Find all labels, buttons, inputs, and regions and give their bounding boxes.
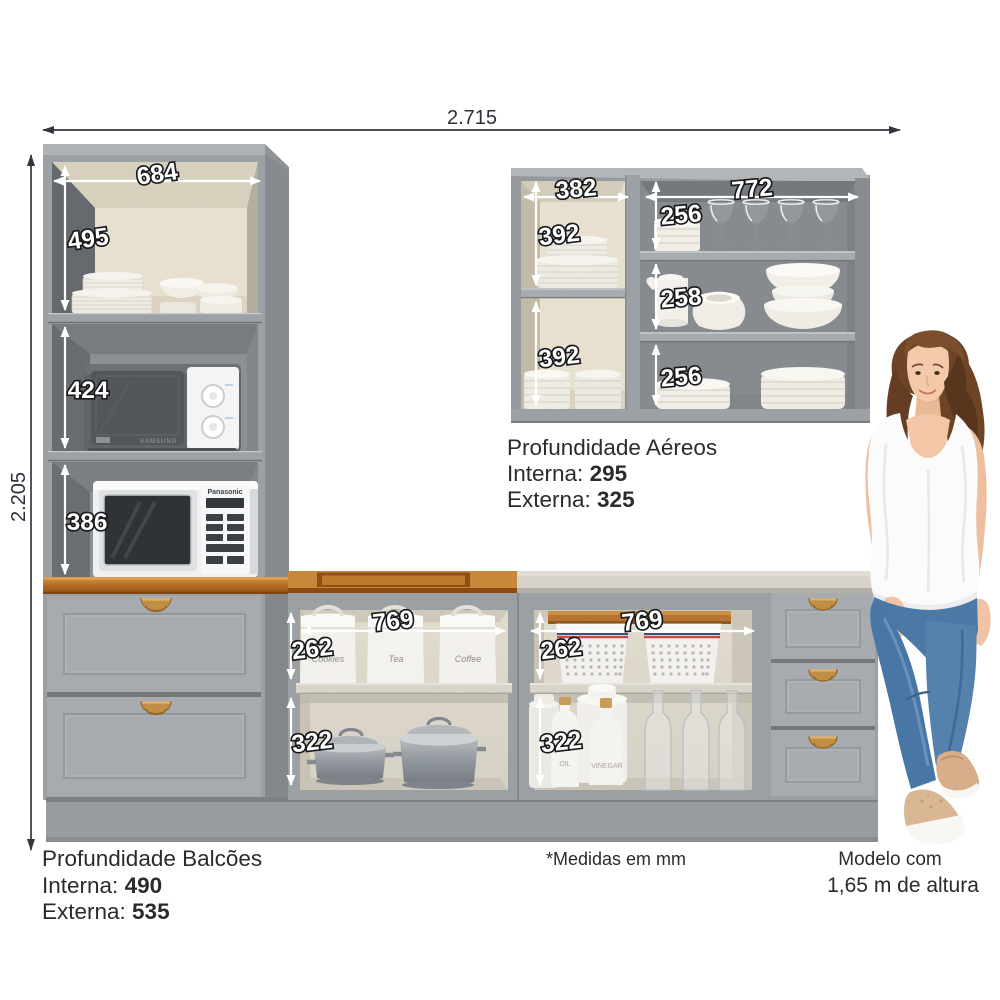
- svg-text:1,65 m de altura: 1,65 m de altura: [827, 874, 979, 897]
- svg-text:Profundidade Aéreos: Profundidade Aéreos: [507, 435, 717, 460]
- svg-text:*Medidas em mm: *Medidas em mm: [546, 849, 686, 869]
- svg-text:769: 769: [620, 606, 663, 637]
- svg-text:684: 684: [135, 158, 180, 190]
- svg-text:256: 256: [660, 200, 703, 230]
- svg-text:2.715: 2.715: [447, 107, 497, 129]
- svg-text:256: 256: [660, 362, 703, 392]
- svg-text:2.205: 2.205: [8, 472, 30, 522]
- svg-text:392: 392: [537, 220, 581, 252]
- svg-text:SAMSUNG: SAMSUNG: [140, 439, 177, 445]
- svg-text:392: 392: [537, 342, 581, 374]
- svg-text:424: 424: [68, 377, 109, 404]
- svg-text:258: 258: [660, 283, 703, 313]
- svg-text:322: 322: [539, 727, 583, 759]
- svg-text:Interna: 295: Interna: 295: [507, 461, 627, 486]
- svg-text:Modelo com: Modelo com: [838, 849, 942, 870]
- svg-text:262: 262: [290, 634, 334, 666]
- svg-text:772: 772: [731, 174, 774, 204]
- svg-text:262: 262: [539, 634, 583, 666]
- svg-text:495: 495: [66, 223, 110, 255]
- svg-text:Panasonic: Panasonic: [207, 489, 242, 496]
- svg-text:Interna: 490: Interna: 490: [42, 873, 162, 898]
- svg-text:322: 322: [290, 727, 334, 759]
- svg-text:382: 382: [555, 174, 598, 204]
- svg-text:Externa: 325: Externa: 325: [507, 487, 635, 512]
- svg-text:Profundidade Balcões: Profundidade Balcões: [42, 846, 262, 871]
- svg-text:Externa: 535: Externa: 535: [42, 899, 170, 924]
- svg-text:769: 769: [371, 606, 414, 637]
- svg-text:386: 386: [67, 509, 108, 536]
